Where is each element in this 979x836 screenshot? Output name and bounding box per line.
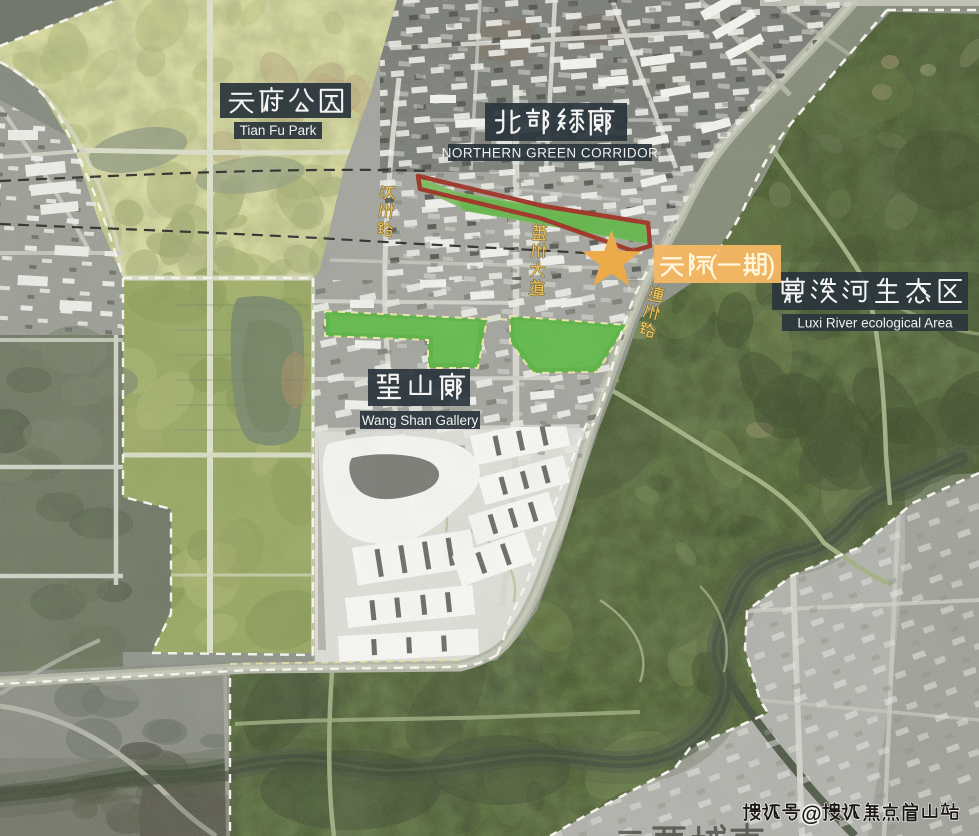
svg-text:(: (: [709, 250, 718, 280]
svg-text:Luxi River ecological Area: Luxi River ecological Area: [797, 316, 953, 331]
svg-text:): ): [767, 250, 776, 280]
svg-text:@: @: [801, 803, 821, 826]
svg-text:Tian Fu Park: Tian Fu Park: [240, 123, 317, 138]
svg-text:Wang Shan Gallery: Wang Shan Gallery: [362, 413, 479, 428]
svg-text:NORTHERN GREEN CORRIDOR: NORTHERN GREEN CORRIDOR: [442, 146, 659, 161]
